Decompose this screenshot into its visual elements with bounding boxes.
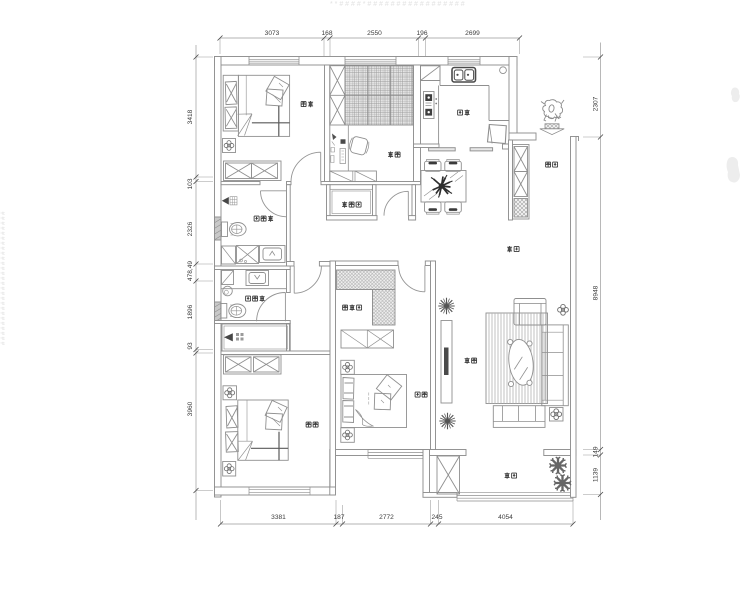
svg-text:187: 187 [333, 514, 344, 521]
svg-text:3073: 3073 [265, 30, 280, 37]
svg-text:2307: 2307 [593, 96, 600, 111]
svg-text:2326: 2326 [187, 221, 194, 236]
svg-text:196: 196 [416, 30, 427, 37]
svg-text:4054: 4054 [498, 514, 513, 521]
svg-text:3418: 3418 [187, 109, 194, 124]
svg-text:3960: 3960 [187, 401, 194, 416]
svg-text:478,49: 478,49 [187, 261, 194, 282]
svg-text:8948: 8948 [593, 285, 600, 300]
svg-text:# # # # # # # # # # # # # # #: # # # # # # # # # # # # # # # # # # # # … [1, 211, 7, 345]
svg-text:1896: 1896 [187, 304, 194, 319]
svg-text:168: 168 [321, 30, 332, 37]
svg-text:1139: 1139 [593, 468, 600, 483]
svg-text:149: 149 [593, 446, 600, 457]
svg-text:2550: 2550 [367, 30, 382, 37]
svg-text:3381: 3381 [271, 514, 286, 521]
svg-text:103: 103 [187, 178, 194, 189]
svg-text:2699: 2699 [465, 30, 480, 37]
svg-text:2772: 2772 [379, 514, 394, 521]
svg-text:93: 93 [187, 342, 194, 350]
svg-text:* * # # # # * # # # # # # # #: * * # # # # * # # # # # # # # # # # # # … [330, 1, 465, 8]
svg-text:245: 245 [431, 514, 442, 521]
